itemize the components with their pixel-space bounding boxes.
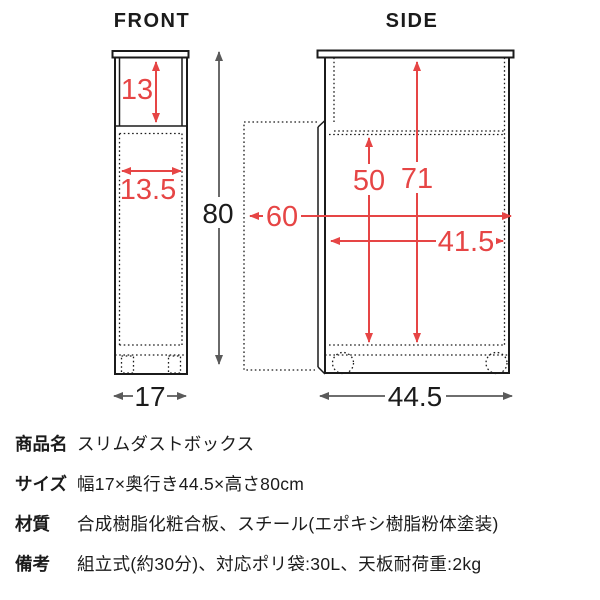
side-view-title: SIDE xyxy=(386,10,439,32)
spec-row-material: 材質 合成樹脂化粧合板、スチール(エポキシ樹脂粉体塗装) xyxy=(15,513,590,535)
side-depth-door-open-label: 60 xyxy=(266,201,298,233)
spec-value: スリムダストボックス xyxy=(77,433,254,455)
spec-label: 商品名 xyxy=(15,433,77,455)
spec-value: 幅17×奥行き44.5×高さ80cm xyxy=(77,473,304,495)
door-panel-bottom-edge xyxy=(318,367,325,374)
spec-row-size: サイズ 幅17×奥行き44.5×高さ80cm xyxy=(15,473,590,495)
spec-label: サイズ xyxy=(15,473,77,495)
side-inner-height-label: 71 xyxy=(401,163,433,195)
dimension-diagram: FRONT SIDE xyxy=(0,0,600,425)
open-door-dotted-outline xyxy=(244,122,317,370)
spec-row-notes: 備考 組立式(約30分)、対応ポリ袋:30L、天板耐荷重:2kg xyxy=(15,553,590,575)
door-panel-top-edge xyxy=(318,121,325,128)
product-dimension-sheet: FRONT SIDE xyxy=(0,0,600,600)
side-top-panel xyxy=(318,51,514,58)
spec-row-product-name: 商品名 スリムダストボックス xyxy=(15,433,590,455)
front-inner-width-label: 13.5 xyxy=(120,174,176,206)
overall-height-label: 80 xyxy=(202,198,233,229)
spec-value: 合成樹脂化粧合板、スチール(エポキシ樹脂粉体塗装) xyxy=(77,513,499,535)
spec-table: 商品名 スリムダストボックス サイズ 幅17×奥行き44.5×高さ80cm 材質… xyxy=(15,433,590,593)
front-top-panel xyxy=(113,51,189,58)
side-inner-depth-label: 41.5 xyxy=(438,226,494,258)
spec-value: 組立式(約30分)、対応ポリ袋:30L、天板耐荷重:2kg xyxy=(77,553,481,575)
spec-label: 材質 xyxy=(15,513,77,535)
front-width-label: 17 xyxy=(134,381,165,412)
spec-label: 備考 xyxy=(15,553,77,575)
front-view-title: FRONT xyxy=(114,10,190,32)
front-opening-height-label: 13 xyxy=(121,74,153,106)
side-bag-height-label: 50 xyxy=(353,165,385,197)
side-depth-label: 44.5 xyxy=(388,381,443,412)
